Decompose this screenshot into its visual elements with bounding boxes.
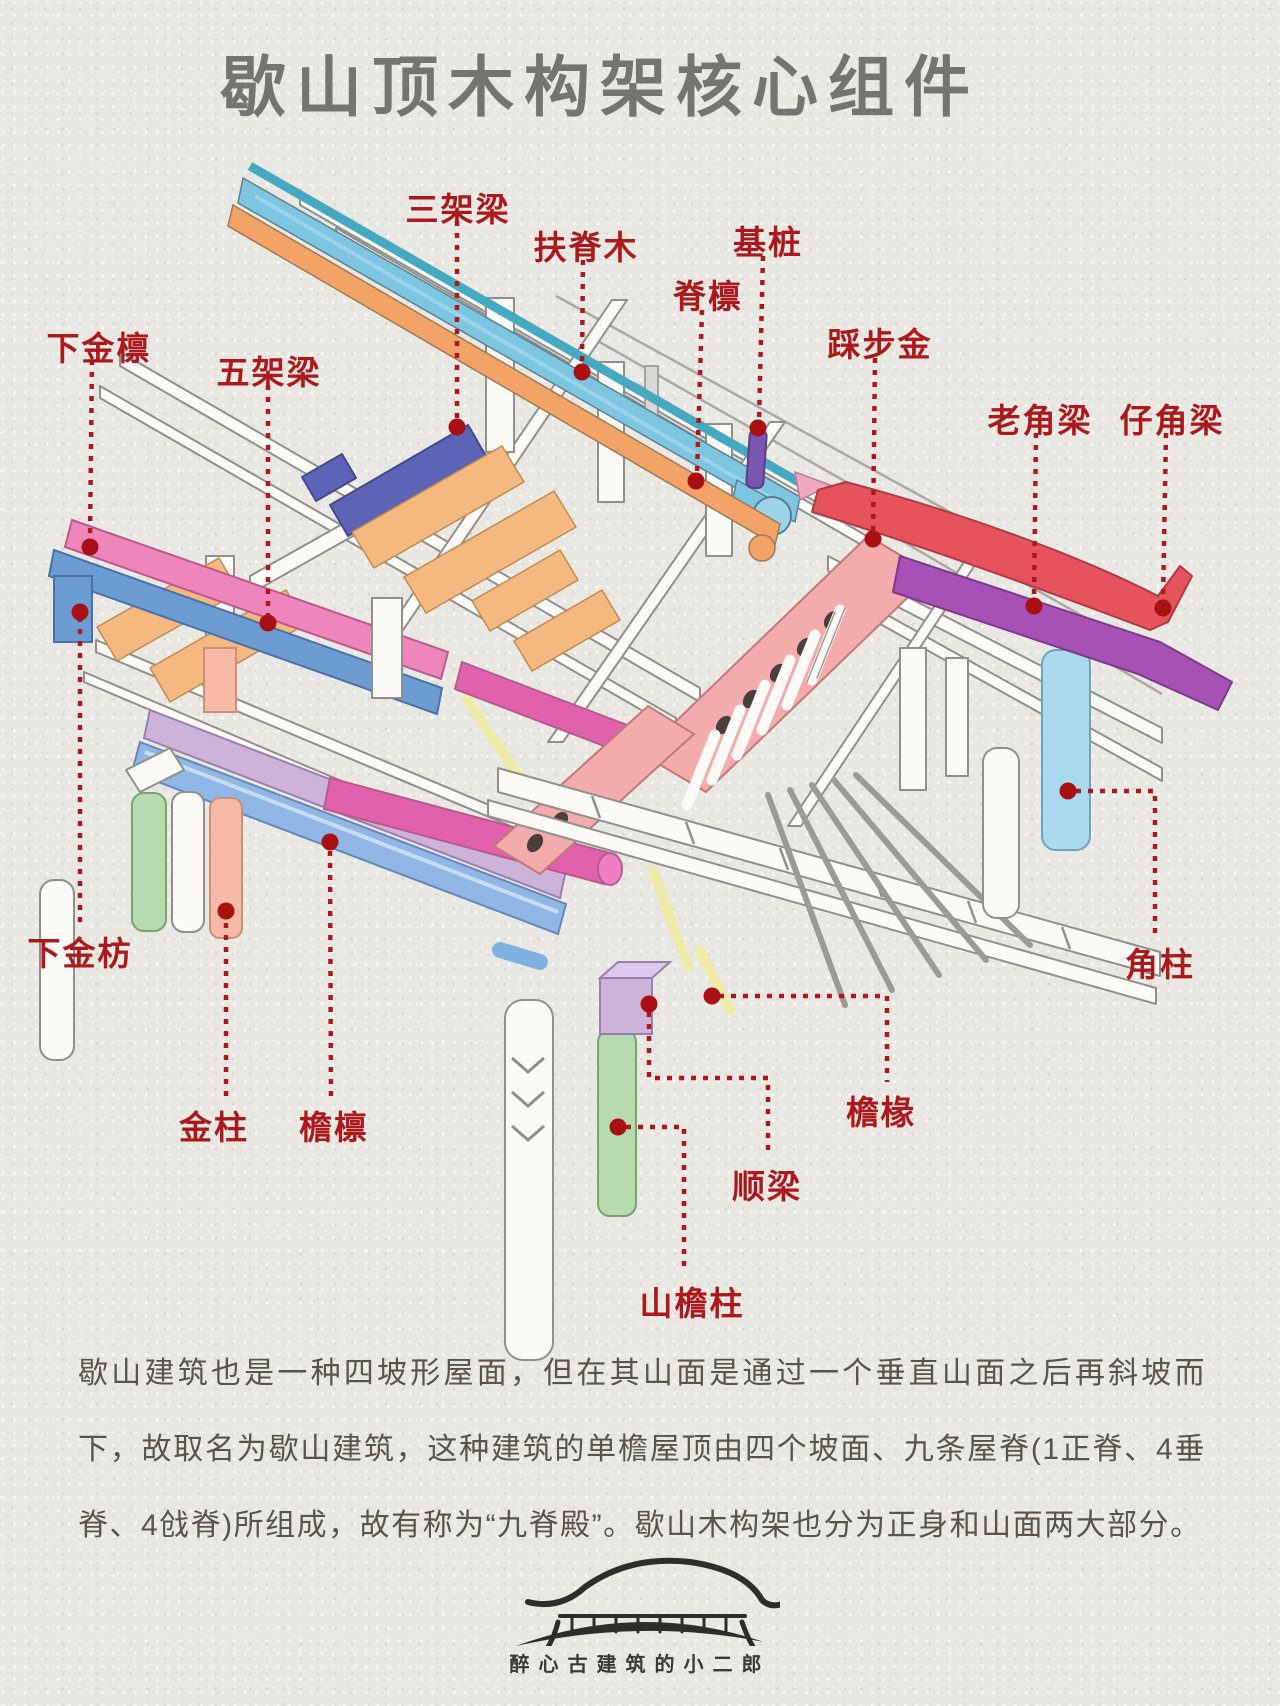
label-yanchuan: 檐椽 (846, 1086, 916, 1134)
label-laojiaoliang: 老角梁 (988, 394, 1093, 442)
label-fujimu: 扶脊木 (534, 221, 639, 269)
label-sanjialiang: 三架梁 (406, 183, 511, 231)
label-zijiaoliang: 仔角梁 (1120, 394, 1225, 442)
jinzhu-pillar-top (204, 648, 236, 712)
poster: 歇山顶木构架核心组件 (0, 0, 1280, 1706)
label-jinzhu: 金柱 (179, 1101, 249, 1149)
label-yanlin: 檐檩 (299, 1101, 369, 1149)
ridge-peg (746, 430, 767, 489)
eave-pillar-green (132, 793, 166, 931)
description-paragraph: 歇山建筑也是一种四坡形屋面，但在其山面是通过一个垂直山面之后再斜坡而下，故取名为… (78, 1336, 1206, 1564)
label-caibujin: 踩步金 (828, 318, 933, 366)
label-xiajinlin: 下金檩 (47, 322, 152, 370)
label-shanyanzhu: 山檐柱 (640, 1277, 745, 1325)
label-xiajinfang: 下金枋 (28, 927, 133, 975)
long-white-column (505, 1000, 553, 1360)
brand-text: 醉心古建筑的小二郎 (510, 1648, 771, 1677)
label-shunliang: 顺梁 (732, 1160, 802, 1208)
dwarf-post (372, 598, 402, 698)
label-jiaozhu: 角柱 (1125, 938, 1195, 986)
corner-column (1042, 650, 1090, 850)
label-jizhuang: 基桩 (733, 216, 803, 264)
label-jilin: 脊檩 (673, 270, 743, 318)
pavilion-logo-icon (500, 1536, 780, 1646)
label-wujialiang: 五架梁 (217, 346, 322, 394)
shunliang-block (600, 962, 670, 1034)
